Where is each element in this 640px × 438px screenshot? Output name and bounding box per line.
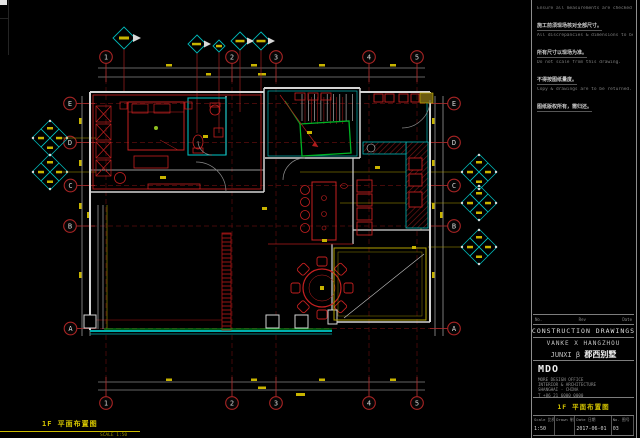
divider <box>533 314 634 315</box>
elevation-markers-top <box>113 27 275 133</box>
viewport-edge-line <box>0 18 8 19</box>
project-name-zh: 郡西别墅 <box>584 350 616 359</box>
firm-info: MORE DESIGN OFFICE INTERIOR & ARCHITECTU… <box>538 377 633 398</box>
rev-col: No. <box>535 317 542 322</box>
project-subtitle: JUNXI β 郡西别墅 <box>531 349 636 360</box>
rev-col: Date <box>622 317 632 322</box>
field-label: Drawn 制图 <box>555 416 575 424</box>
grid-label: 1 <box>104 400 108 408</box>
sheet-title-underline <box>0 431 140 432</box>
note-line: 图纸版权所有，需归还。 <box>537 104 592 112</box>
grid-label: C <box>452 182 456 190</box>
dining-furniture <box>268 180 372 244</box>
level-dot <box>154 126 158 130</box>
divider <box>533 360 634 361</box>
plan-walls <box>90 88 430 334</box>
grid-label: 4 <box>367 400 371 408</box>
grid-label: 2 <box>230 54 234 62</box>
document-type: CONSTRUCTION DRAWINGS <box>531 327 636 335</box>
title-block-border <box>636 0 637 438</box>
grid-label: 3 <box>274 54 278 62</box>
grid-label: 5 <box>415 54 419 62</box>
rev-col: Rev <box>579 317 586 322</box>
general-notes: Ensure all measurements are checked & ve… <box>537 6 633 114</box>
grid-label: D <box>68 139 72 147</box>
grid-label: 2 <box>230 400 234 408</box>
field-label: Scale 比例 <box>533 416 555 424</box>
round-table <box>291 257 353 319</box>
field-value: 03 <box>612 424 634 435</box>
field-value: 2017-06-01 <box>575 424 611 435</box>
field-label: No. 图号 <box>612 416 634 424</box>
divider <box>533 324 634 325</box>
sheet-scale: SCALE 1:50 <box>100 433 127 438</box>
firm-logo: MDO <box>538 364 559 375</box>
revision-header: No. Rev Date <box>535 317 632 322</box>
field-label: Date 日期 <box>575 416 611 424</box>
note-line: 不得按图纸量度。 <box>537 77 577 85</box>
divider <box>533 397 634 398</box>
grid-label: 4 <box>367 54 371 62</box>
grid-label: 5 <box>415 400 419 408</box>
level-dot <box>320 286 324 290</box>
project-code: JUNXI β <box>551 351 581 359</box>
sheet-title: 1F 平面布置图 <box>42 419 98 429</box>
drawing-title: 1F 平面布置图 <box>531 401 636 411</box>
bedroom-furniture <box>96 102 223 189</box>
grid-label: 3 <box>274 400 278 408</box>
title-block-border <box>531 0 532 438</box>
grid-label: E <box>68 100 72 108</box>
field-value <box>555 424 575 435</box>
title-block-fields: Scale 比例 Drawn 制图 Date 日期 No. 图号 1:50 20… <box>533 415 634 436</box>
divider <box>533 337 634 338</box>
viewport-corner-mark <box>0 0 7 5</box>
title-block: Ensure all measurements are checked & ve… <box>531 0 637 438</box>
grid-label: E <box>452 100 456 108</box>
note-line: 所有尺寸以现场为准。 <box>537 50 587 58</box>
dimension-lines <box>82 68 443 390</box>
project-name: VANKE X HANGZHOU <box>531 340 636 347</box>
kitchen <box>363 93 433 228</box>
grid-label: D <box>452 139 456 147</box>
field-value: 1:50 <box>533 424 555 435</box>
grid-label: B <box>68 223 72 231</box>
grid-label: C <box>68 182 72 190</box>
staircase <box>280 93 352 156</box>
note-line: 施工前须现场核对全部尺寸。 <box>537 23 602 31</box>
terrace-room <box>334 248 426 320</box>
elevation-cluster <box>461 229 497 265</box>
grid-label: B <box>452 223 456 231</box>
viewport-edge-line <box>8 0 9 55</box>
cad-viewport[interactable]: 1 2 3 4 5 1 2 3 4 5 E D C B A E D C B A <box>0 0 640 438</box>
grid-label: 1 <box>104 54 108 62</box>
